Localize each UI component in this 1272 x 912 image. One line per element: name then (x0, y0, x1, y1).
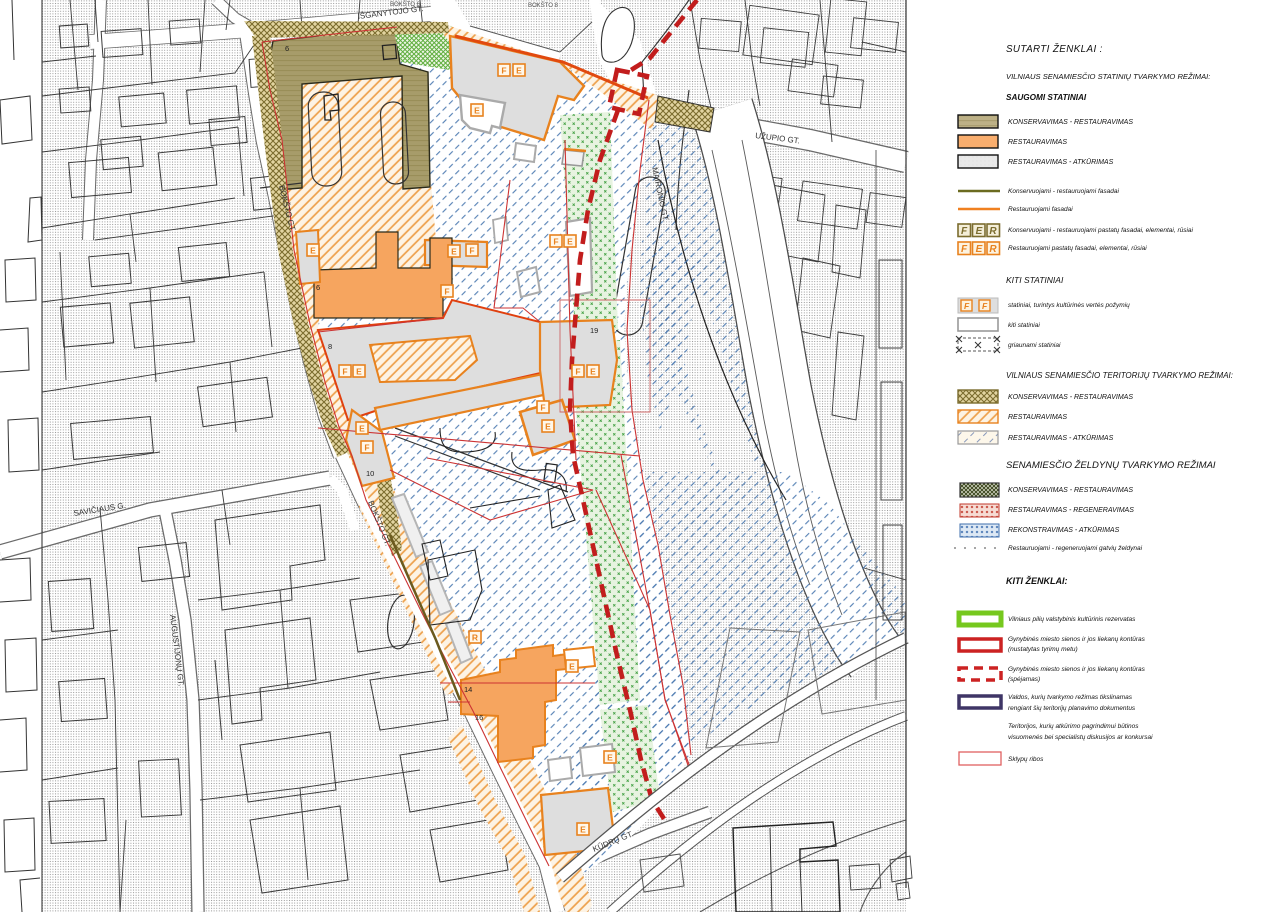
svg-text:(spėjamas): (spėjamas) (1008, 676, 1040, 683)
svg-text:19: 19 (590, 326, 598, 335)
svg-text:VILNIAUS SENAMIESČIO TERITORIJ: VILNIAUS SENAMIESČIO TERITORIJŲ TVARKYMO… (1006, 371, 1233, 380)
svg-text:E: E (356, 367, 362, 377)
svg-text:SAUGOMI STATINIAI: SAUGOMI STATINIAI (1006, 93, 1087, 102)
svg-text:8: 8 (328, 342, 332, 351)
svg-text:E: E (516, 66, 522, 76)
svg-text:Konservuojami - restauruojami: Konservuojami - restauruojami pastatų fa… (1008, 227, 1194, 234)
svg-text:F: F (540, 403, 545, 413)
svg-text:Gynybinės miesto sienos ir jos: Gynybinės miesto sienos ir jos liekanų k… (1008, 636, 1146, 643)
svg-text:E: E (976, 226, 983, 237)
svg-text:E: E (545, 422, 551, 432)
svg-text:REKONSTRAVIMAS - ATKŪRIMAS: REKONSTRAVIMAS - ATKŪRIMAS (1008, 526, 1120, 534)
svg-text:F: F (444, 287, 449, 297)
svg-text:F: F (982, 301, 988, 311)
svg-text:griaunami statiniai: griaunami statiniai (1008, 342, 1061, 349)
svg-text:RESTAURAVIMAS - ATKŪRIMAS: RESTAURAVIMAS - ATKŪRIMAS (1008, 158, 1114, 166)
svg-text:16: 16 (475, 713, 483, 722)
svg-text:VILNIAUS SENAMIESČIO STATINIŲ: VILNIAUS SENAMIESČIO STATINIŲ TVARKYMO R… (1006, 72, 1210, 81)
svg-text:F: F (961, 226, 968, 237)
svg-text:F: F (964, 301, 970, 311)
svg-text:Restauruojami - regeneruojami: Restauruojami - regeneruojami gatvių žel… (1008, 545, 1143, 552)
svg-text:E: E (474, 106, 480, 116)
svg-text:F: F (961, 244, 968, 255)
svg-text:RESTAURAVIMAS - REGENERAVIMAS: RESTAURAVIMAS - REGENERAVIMAS (1008, 507, 1134, 514)
svg-text:F: F (469, 246, 474, 256)
svg-text:rengiant šių teritorijų planav: rengiant šių teritorijų planavimo dokume… (1008, 705, 1136, 712)
svg-text:visuomenės bei specialistų dis: visuomenės bei specialistų diskusijos ar… (1008, 734, 1153, 741)
svg-text:6: 6 (285, 44, 289, 53)
svg-text:KONSERVAVIMAS - RESTAURAVIMAS: KONSERVAVIMAS - RESTAURAVIMAS (1008, 394, 1133, 401)
svg-text:E: E (607, 753, 613, 763)
svg-text:F: F (553, 237, 558, 247)
svg-text:E: E (590, 367, 596, 377)
svg-text:BOKŠTO 8: BOKŠTO 8 (528, 2, 559, 9)
svg-text:F: F (575, 367, 580, 377)
svg-text:R: R (989, 226, 997, 237)
svg-text:E: E (976, 244, 983, 255)
svg-text:E: E (567, 237, 573, 247)
svg-text:Teritorijos, kurių atkūrimo pa: Teritorijos, kurių atkūrimo pagrindimui … (1008, 723, 1139, 730)
svg-text:kiti statiniai: kiti statiniai (1008, 322, 1040, 329)
svg-text:(nustatytas tyrimų metu): (nustatytas tyrimų metu) (1008, 646, 1078, 653)
svg-text:14: 14 (464, 685, 472, 694)
svg-text:Restauruojami pastatų fasadai,: Restauruojami pastatų fasadai, elementai… (1008, 245, 1147, 252)
svg-text:Gynybinės miesto sienos ir jos: Gynybinės miesto sienos ir jos liekanų k… (1008, 666, 1146, 673)
svg-text:F: F (501, 66, 506, 76)
svg-text:R: R (989, 244, 997, 255)
svg-text:E: E (569, 662, 575, 672)
svg-text:Valdos, kurių tvarkymo režimas: Valdos, kurių tvarkymo režimas tikslinam… (1008, 694, 1133, 701)
svg-text:E: E (310, 246, 316, 256)
svg-text:KITI STATINIAI: KITI STATINIAI (1006, 275, 1064, 285)
svg-text:E: E (359, 424, 365, 434)
svg-text:RESTAURAVIMAS: RESTAURAVIMAS (1008, 414, 1067, 421)
svg-text:KONSERVAVIMAS - RESTAURAVIMAS: KONSERVAVIMAS - RESTAURAVIMAS (1008, 119, 1133, 126)
svg-text:RESTAURAVIMAS - ATKŪRIMAS: RESTAURAVIMAS - ATKŪRIMAS (1008, 434, 1114, 442)
svg-text:KITI ŽENKLAI:: KITI ŽENKLAI: (1006, 575, 1068, 586)
svg-text:KONSERVAVIMAS - RESTAURAVIMAS: KONSERVAVIMAS - RESTAURAVIMAS (1008, 487, 1133, 494)
svg-text:RESTAURAVIMAS: RESTAURAVIMAS (1008, 139, 1067, 146)
svg-text:Konservuojami - restauruojami: Konservuojami - restauruojami fasadai (1008, 188, 1119, 195)
svg-text:Vilniaus pilių valstybinis kul: Vilniaus pilių valstybinis kultūrinis re… (1008, 616, 1136, 623)
svg-text:statiniai, turintys kultūrinė: statiniai, turintys kultūrinės vertės po… (1008, 302, 1130, 309)
svg-text:F: F (342, 367, 347, 377)
svg-text:E: E (580, 825, 586, 835)
svg-text:6: 6 (316, 283, 320, 292)
svg-text:Sklypų ribos: Sklypų ribos (1008, 756, 1044, 763)
svg-text:BOKŠTO 6: BOKŠTO 6 (390, 1, 421, 8)
svg-text:E: E (451, 247, 457, 257)
svg-text:SENAMIESČIO ŽELDYNŲ TVARKYMO R: SENAMIESČIO ŽELDYNŲ TVARKYMO REŽIMAI (1006, 460, 1216, 471)
svg-text:R: R (472, 633, 478, 643)
svg-text:Restauruojami fasadai: Restauruojami fasadai (1008, 206, 1073, 213)
svg-text:10: 10 (366, 469, 374, 478)
svg-text:SUTARTI ŽENKLAI :: SUTARTI ŽENKLAI : (1006, 44, 1103, 55)
svg-text:F: F (364, 443, 369, 453)
